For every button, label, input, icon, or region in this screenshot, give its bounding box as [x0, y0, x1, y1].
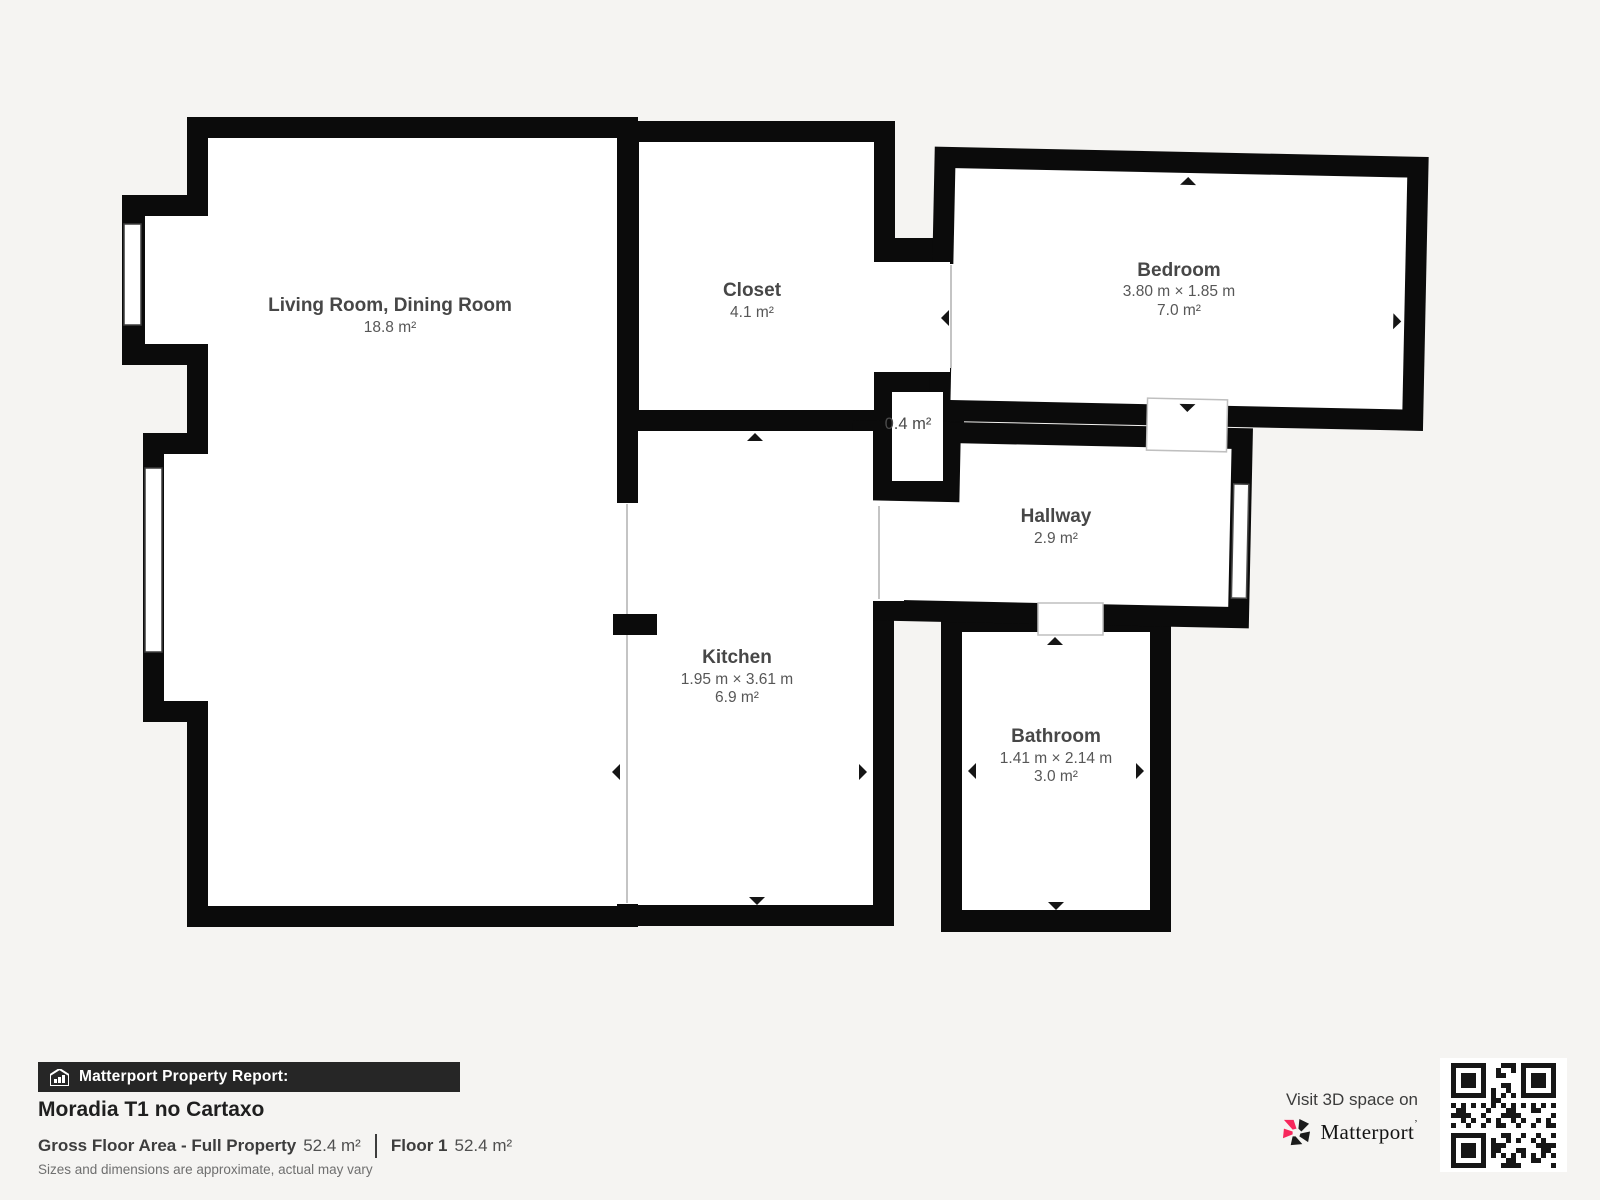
hallway-name: Hallway: [1021, 506, 1092, 527]
visit-3d-space-label: Visit 3D space on: [1158, 1090, 1418, 1110]
closet-floor: [639, 142, 874, 410]
hallway-window: [1231, 484, 1248, 598]
living-room-floor: [145, 138, 617, 906]
small-closet-floor: [892, 392, 943, 481]
matterport-logo-icon: [1281, 1118, 1312, 1147]
qr-code-pattern: [1451, 1063, 1556, 1168]
hallway-area: 2.9 m²: [1034, 530, 1078, 547]
stats-divider: [375, 1134, 377, 1158]
bedroom-name: Bedroom: [1137, 260, 1220, 281]
room-label-closet: Closet 4.1 m²: [723, 280, 782, 321]
bathroom-door-gap: [1038, 603, 1103, 635]
gross-floor-area-label: Gross Floor Area - Full Property: [38, 1136, 296, 1156]
property-title: Moradia T1 no Cartaxo: [38, 1098, 264, 1122]
qr-code: [1440, 1058, 1567, 1172]
matterport-promo: Visit 3D space on Matterport’: [1158, 1090, 1418, 1147]
matterport-wordmark: Matterport’: [1320, 1120, 1418, 1145]
bathroom-area: 3.0 m²: [1034, 768, 1078, 785]
living-room-window-top: [124, 224, 141, 325]
kitchen-floor: [638, 431, 873, 905]
room-label-small-closet: 0.4 m²: [885, 415, 932, 433]
floor-area-stats: Gross Floor Area - Full Property 52.4 m²…: [38, 1134, 512, 1158]
matterport-floorplan-report-page: { "floorplan": { "rooms": [ {"name": "Li…: [0, 0, 1600, 1200]
kitchen-dims: 1.95 m × 3.61 m: [681, 671, 793, 688]
floor-plan: Living Room, Dining Room 18.8 m² Closet …: [0, 0, 1600, 1000]
closet-area: 4.1 m²: [730, 304, 774, 321]
gross-floor-area-value: 52.4 m²: [303, 1136, 361, 1156]
bedroom-area: 7.0 m²: [1157, 302, 1201, 319]
small-closet-area: 0.4 m²: [885, 415, 932, 433]
disclaimer-text: Sizes and dimensions are approximate, ac…: [38, 1162, 373, 1177]
living-room-name: Living Room, Dining Room: [268, 295, 512, 316]
floor-value: 52.4 m²: [455, 1136, 513, 1156]
kitchen-name: Kitchen: [702, 647, 772, 668]
report-header-label: Matterport Property Report:: [79, 1068, 289, 1086]
closet-name: Closet: [723, 280, 782, 301]
bedroom-dims: 3.80 m × 1.85 m: [1123, 283, 1235, 300]
bathroom-dims: 1.41 m × 2.14 m: [1000, 750, 1112, 767]
kitchen-wall-stub: [613, 614, 657, 635]
floor-label: Floor 1: [391, 1136, 448, 1156]
matterport-logo: Matterport’: [1158, 1118, 1418, 1147]
report-header-bar: Matterport Property Report:: [38, 1062, 460, 1092]
living-room-area: 18.8 m²: [364, 319, 417, 336]
bathroom-name: Bathroom: [1011, 726, 1101, 747]
living-room-window-bottom: [145, 468, 162, 652]
house-chart-icon: [50, 1069, 69, 1086]
kitchen-area: 6.9 m²: [715, 689, 759, 706]
